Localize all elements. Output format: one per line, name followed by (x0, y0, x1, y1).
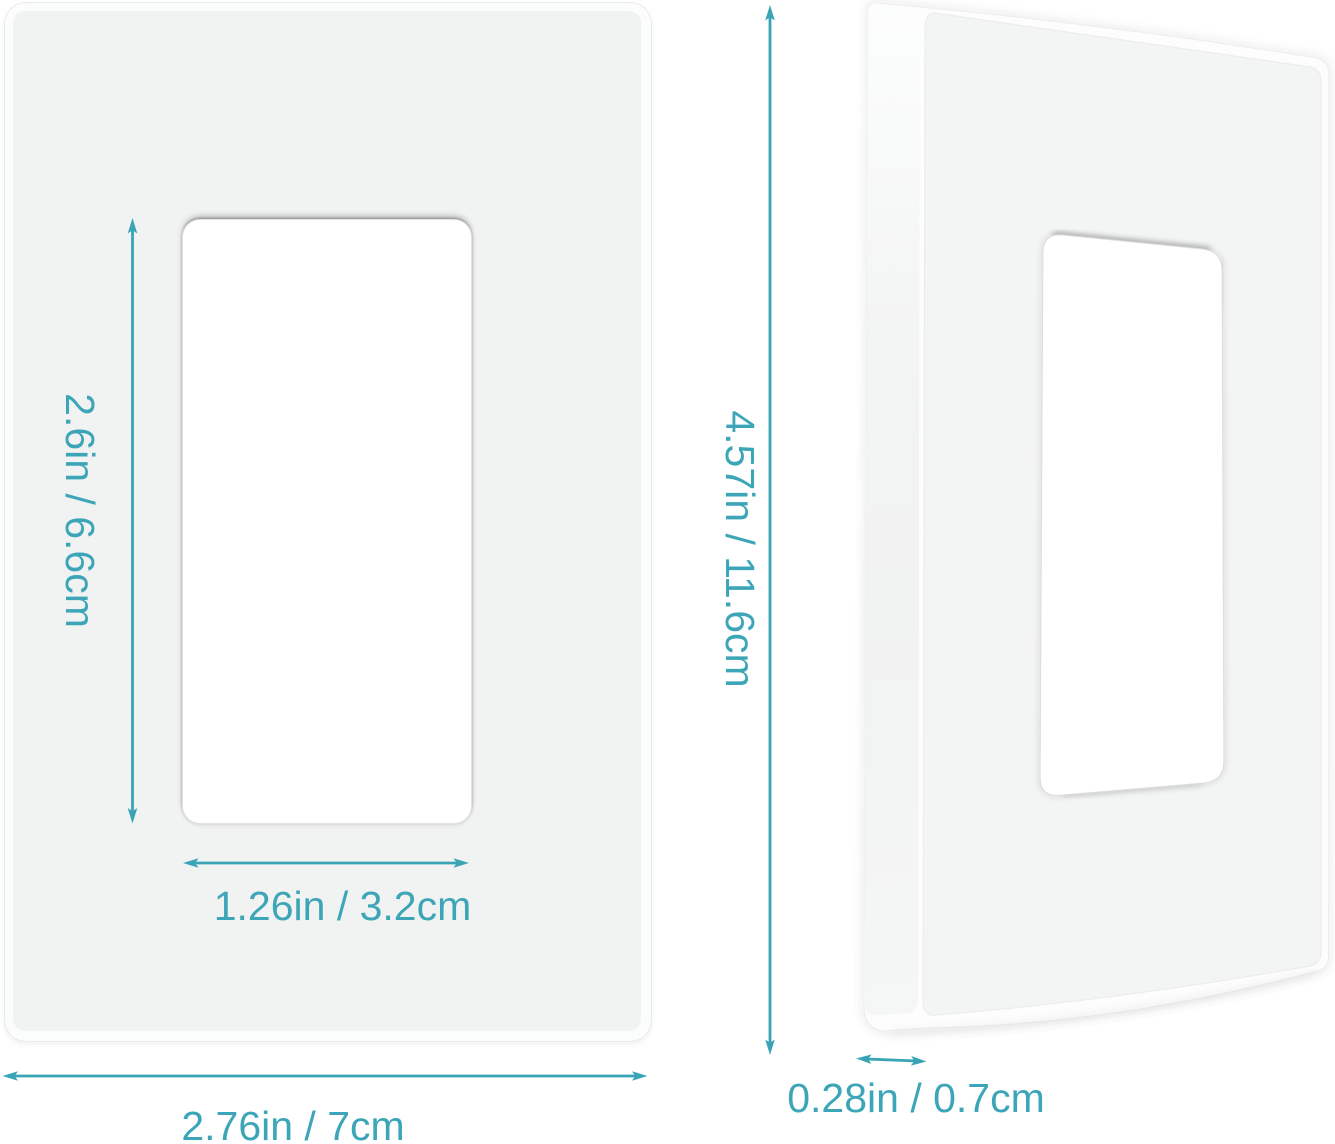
svg-text:4.57in / 11.6cm: 4.57in / 11.6cm (717, 410, 763, 687)
svg-text:0.28in / 0.7cm: 0.28in / 0.7cm (787, 1075, 1045, 1121)
svg-text:1.26in / 3.2cm: 1.26in / 3.2cm (214, 883, 472, 929)
svg-text:2.76in / 7cm: 2.76in / 7cm (181, 1103, 404, 1144)
svg-text:2.6in / 6.6cm: 2.6in / 6.6cm (57, 393, 103, 628)
